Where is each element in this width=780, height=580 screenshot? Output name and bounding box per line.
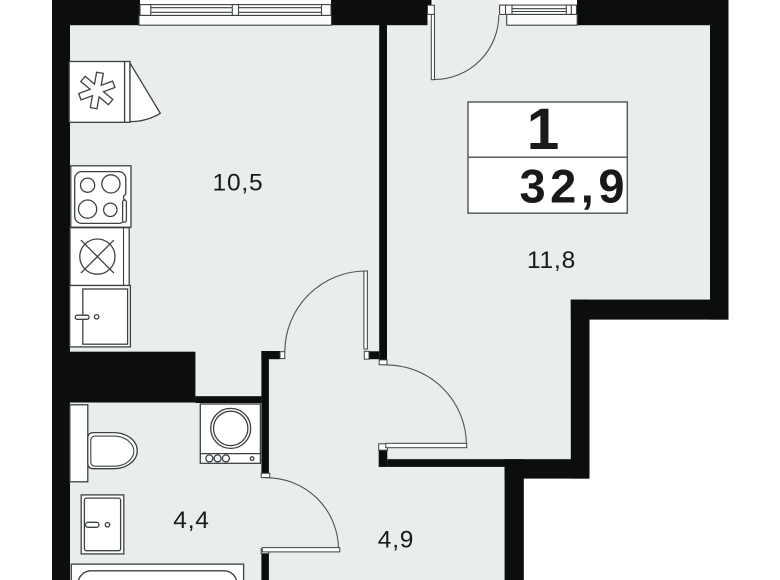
svg-text:32,9: 32,9 bbox=[520, 159, 629, 212]
svg-text:4,4: 4,4 bbox=[173, 507, 209, 534]
svg-text:1: 1 bbox=[527, 97, 560, 162]
svg-text:10,5: 10,5 bbox=[213, 170, 264, 197]
svg-text:11,8: 11,8 bbox=[527, 247, 576, 274]
svg-text:4,9: 4,9 bbox=[378, 527, 414, 554]
